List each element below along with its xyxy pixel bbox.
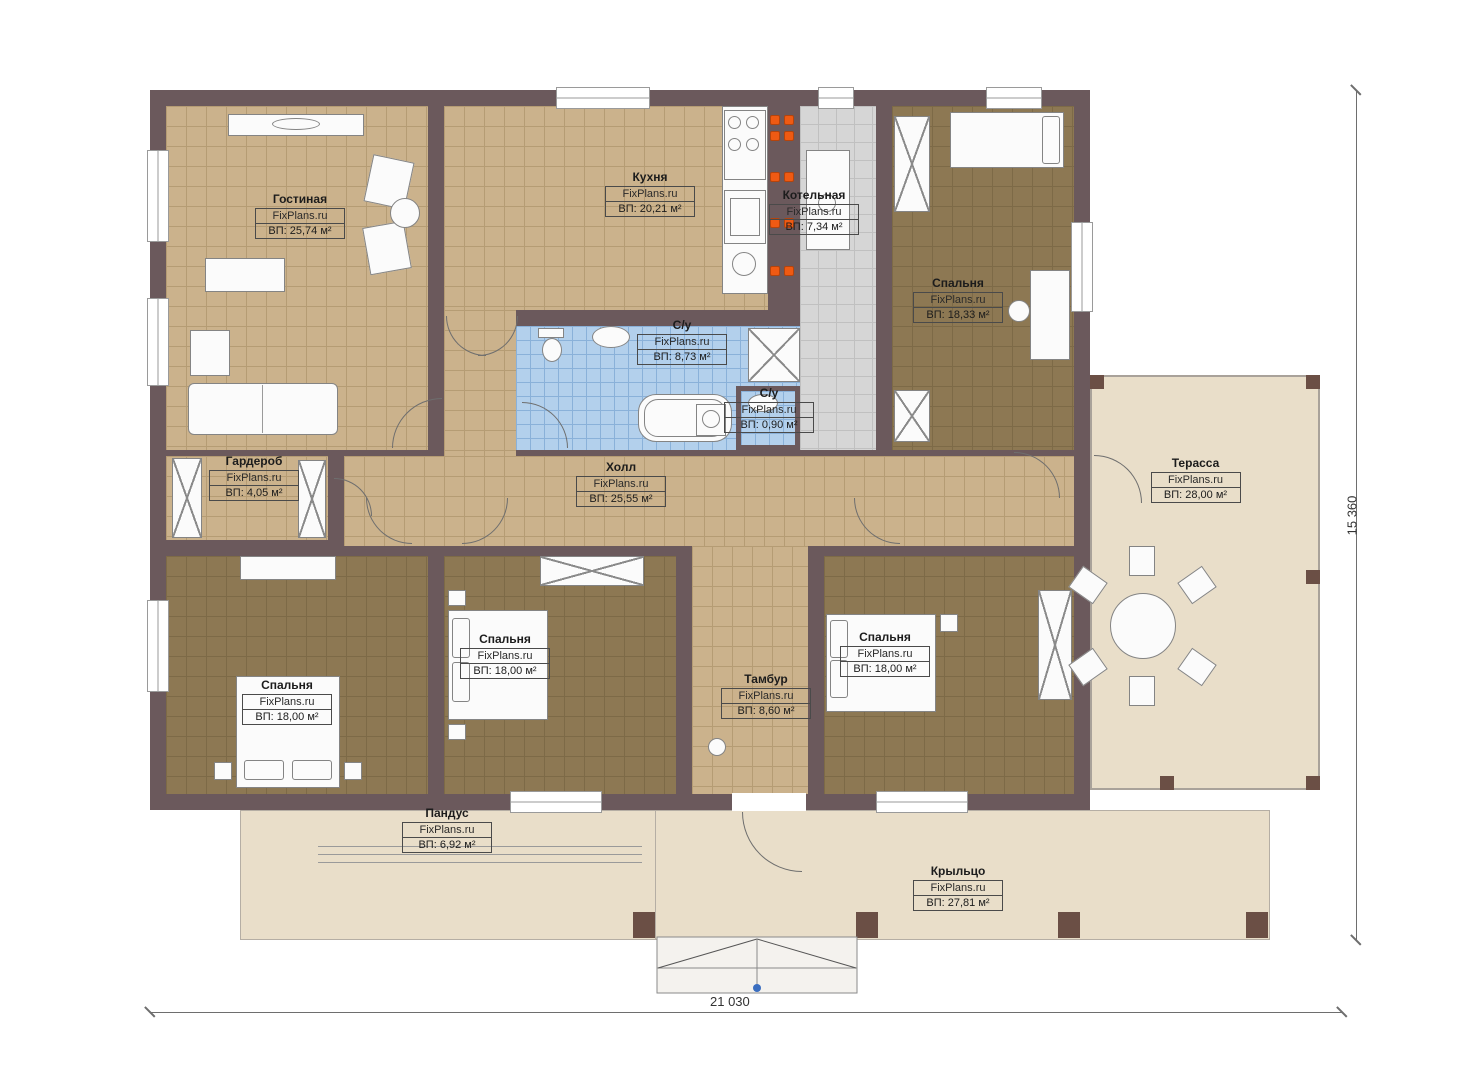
nightstand	[344, 762, 362, 780]
kitchen-sink	[732, 252, 756, 276]
room-area: ВП: 0,90 м²	[725, 418, 813, 432]
terrace-post	[1306, 776, 1320, 790]
brand-watermark: FixPlans.ru	[256, 209, 344, 224]
room-area: ВП: 20,21 м²	[606, 202, 694, 216]
nightstand	[448, 724, 466, 740]
desk	[1030, 270, 1070, 360]
room-label-hall: Холл FixPlans.ru ВП: 25,55 м²	[556, 460, 686, 507]
brand-watermark: FixPlans.ru	[243, 695, 331, 710]
room-label-bedroom-bm: Спальня FixPlans.ru ВП: 18,00 м²	[440, 632, 570, 679]
burner	[728, 138, 741, 151]
room-label-wardrobe: Гардероб FixPlans.ru ВП: 4,05 м²	[196, 454, 312, 501]
dresser	[894, 390, 930, 442]
burner	[728, 116, 741, 129]
indicator-dot	[770, 131, 780, 141]
burner	[746, 138, 759, 151]
side-table	[390, 198, 420, 228]
room-area: ВП: 7,34 м²	[770, 220, 858, 234]
terrace-post	[1306, 570, 1320, 584]
nightstand	[448, 590, 466, 606]
porch-post	[633, 912, 655, 938]
room-name: С/у	[760, 386, 779, 400]
room-area: ВП: 4,05 м²	[210, 486, 298, 500]
room-tambour	[692, 546, 808, 794]
room-label-kitchen: Кухня FixPlans.ru ВП: 20,21 м²	[580, 170, 720, 217]
window	[876, 791, 968, 813]
indicator-dot	[770, 115, 780, 125]
terrace-post	[1160, 776, 1174, 790]
dimension-width: 21 030	[710, 994, 750, 1009]
room-area: ВП: 18,00 м²	[243, 710, 331, 724]
window	[147, 150, 169, 242]
room-label-porch: Крыльцо FixPlans.ru ВП: 27,81 м²	[888, 864, 1028, 911]
brand-watermark: FixPlans.ru	[577, 477, 665, 492]
dimension-height: 15 360	[1344, 496, 1359, 536]
window	[147, 600, 169, 692]
room-name: Тамбур	[744, 672, 788, 686]
toilet-tank	[538, 328, 564, 338]
pillow	[292, 760, 332, 780]
room-label-bedroom-bl: Спальня FixPlans.ru ВП: 18,00 м²	[222, 678, 352, 725]
dimension-line-bottom	[150, 1012, 1342, 1013]
wardrobe-box	[894, 116, 930, 212]
room-name: С/у	[673, 318, 692, 332]
terrace-chair	[1129, 676, 1155, 706]
room-name: Спальня	[261, 678, 313, 692]
room-label-bedroom-tr: Спальня FixPlans.ru ВП: 18,33 м²	[888, 276, 1028, 323]
indicator-dot	[770, 172, 780, 182]
porch-post	[1246, 912, 1268, 938]
room-label-bedroom-br: Спальня FixPlans.ru ВП: 18,00 м²	[820, 630, 950, 677]
room-name: Гардероб	[226, 454, 283, 468]
armchair	[190, 330, 230, 376]
room-label-living: Гостиная FixPlans.ru ВП: 25,74 м²	[230, 192, 370, 239]
room-area: ВП: 18,00 м²	[841, 662, 929, 676]
window	[818, 87, 854, 109]
coffee-table	[205, 258, 285, 292]
room-area: ВП: 25,74 м²	[256, 224, 344, 238]
ramp-rail	[318, 854, 642, 855]
room-area: ВП: 18,33 м²	[914, 308, 1002, 322]
room-area: ВП: 28,00 м²	[1152, 488, 1240, 502]
room-name: Терасса	[1172, 456, 1220, 470]
terrace-table	[1110, 593, 1176, 659]
room-label-ramp: Пандус FixPlans.ru ВП: 6,92 м²	[382, 806, 512, 853]
brand-watermark: FixPlans.ru	[914, 293, 1002, 308]
window	[147, 298, 169, 386]
brand-watermark: FixPlans.ru	[914, 881, 1002, 896]
room-area: ВП: 18,00 м²	[461, 664, 549, 678]
brand-watermark: FixPlans.ru	[403, 823, 491, 838]
window	[556, 87, 650, 109]
room-name: Кухня	[632, 170, 667, 184]
indicator-dot	[784, 115, 794, 125]
wardrobe-box	[1038, 590, 1072, 700]
terrace-post	[1090, 375, 1104, 389]
porch-post	[856, 912, 878, 938]
room-name: Спальня	[859, 630, 911, 644]
brand-watermark: FixPlans.ru	[770, 205, 858, 220]
entry-steps	[656, 936, 858, 994]
room-name: Гостиная	[273, 192, 327, 206]
floor-plan: Гостиная FixPlans.ru ВП: 25,74 м² Кухня …	[0, 0, 1474, 1080]
shower	[748, 328, 800, 382]
indicator-dot	[784, 131, 794, 141]
window	[986, 87, 1042, 109]
sofa	[188, 383, 338, 435]
porch-post	[1058, 912, 1080, 938]
room-area: ВП: 8,73 м²	[638, 350, 726, 364]
room-area: ВП: 27,81 м²	[914, 896, 1002, 910]
sofa-cushion-line	[262, 385, 263, 433]
room-name: Котельная	[783, 188, 846, 202]
room-area: ВП: 8,60 м²	[722, 704, 810, 718]
window	[1071, 222, 1093, 312]
floor-drain	[708, 738, 726, 756]
room-label-tambour: Тамбур FixPlans.ru ВП: 8,60 м²	[706, 672, 826, 719]
dresser	[240, 556, 336, 580]
room-label-boiler: Котельная FixPlans.ru ВП: 7,34 м²	[756, 188, 872, 235]
brand-watermark: FixPlans.ru	[841, 647, 929, 662]
window	[510, 791, 602, 813]
brand-watermark: FixPlans.ru	[722, 689, 810, 704]
room-name: Спальня	[479, 632, 531, 646]
room-name: Пандус	[425, 806, 468, 820]
room-label-bath-small: С/у FixPlans.ru ВП: 0,90 м²	[714, 386, 824, 433]
room-name: Крыльцо	[931, 864, 986, 878]
pillow	[244, 760, 284, 780]
door-opening	[732, 793, 806, 811]
room-hall	[344, 456, 1074, 546]
indicator-dot	[784, 266, 794, 276]
porch-divider	[655, 810, 656, 940]
burner	[746, 116, 759, 129]
nightstand	[214, 762, 232, 780]
brand-watermark: FixPlans.ru	[461, 649, 549, 664]
room-area: ВП: 6,92 м²	[403, 838, 491, 852]
toilet-bowl	[542, 338, 562, 362]
terrace-post	[1306, 375, 1320, 389]
pillow	[1042, 116, 1060, 164]
brand-watermark: FixPlans.ru	[725, 403, 813, 418]
brand-watermark: FixPlans.ru	[1152, 473, 1240, 488]
room-name: Спальня	[932, 276, 984, 290]
brand-watermark: FixPlans.ru	[210, 471, 298, 486]
ramp-rail	[318, 862, 642, 863]
terrace-chair	[1129, 546, 1155, 576]
room-name: Холл	[606, 460, 636, 474]
room-label-terrace: Терасса FixPlans.ru ВП: 28,00 м²	[1128, 456, 1263, 503]
brand-watermark: FixPlans.ru	[638, 335, 726, 350]
tv	[272, 118, 320, 130]
indicator-dot	[770, 266, 780, 276]
room-area: ВП: 25,55 м²	[577, 492, 665, 506]
indicator-dot	[784, 172, 794, 182]
room-label-bath-main: С/у FixPlans.ru ВП: 8,73 м²	[622, 318, 742, 365]
brand-watermark: FixPlans.ru	[606, 187, 694, 202]
wardrobe-box	[540, 556, 644, 586]
